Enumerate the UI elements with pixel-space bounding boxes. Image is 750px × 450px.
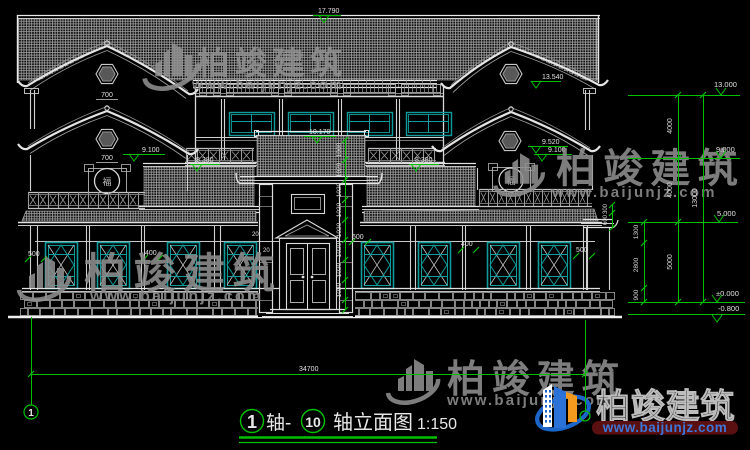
svg-text:13.540: 13.540 [542, 74, 564, 81]
svg-text:400: 400 [461, 241, 473, 248]
svg-text:700: 700 [101, 155, 113, 162]
svg-text:8.380: 8.380 [196, 157, 214, 164]
svg-text:-0.800: -0.800 [718, 304, 739, 313]
svg-text:www.baijunjz.com: www.baijunjz.com [602, 420, 728, 435]
svg-text:1: 1 [28, 408, 34, 419]
svg-text:1020: 1020 [336, 262, 343, 277]
svg-text:300: 300 [603, 203, 609, 214]
svg-text:13.000: 13.000 [714, 80, 737, 89]
svg-text:轴-: 轴- [266, 412, 291, 434]
svg-text:1020: 1020 [336, 282, 343, 297]
svg-text:9.520: 9.520 [542, 139, 560, 146]
svg-text:www.baijunjz.com: www.baijunjz.com [191, 77, 344, 92]
svg-text:福: 福 [102, 176, 111, 187]
svg-text:1020: 1020 [336, 222, 343, 237]
svg-text:1: 1 [247, 412, 257, 432]
svg-text:700: 700 [101, 92, 113, 99]
svg-text:17.790: 17.790 [318, 8, 340, 15]
svg-text:1020: 1020 [336, 202, 343, 217]
svg-text:1000: 1000 [336, 142, 343, 157]
svg-text:±0.000: ±0.000 [716, 289, 739, 298]
svg-text:柏竣建筑: 柏竣建筑 [197, 45, 348, 81]
svg-text:1020: 1020 [336, 242, 343, 257]
svg-text:20: 20 [252, 232, 259, 238]
svg-text:8.380: 8.380 [415, 157, 433, 164]
svg-text:4000: 4000 [667, 182, 674, 198]
svg-text:5.000: 5.000 [717, 209, 736, 218]
svg-text:轴立面图: 轴立面图 [333, 411, 413, 434]
svg-text:1020: 1020 [336, 182, 343, 197]
svg-text:9.100: 9.100 [142, 147, 160, 154]
svg-text:5000: 5000 [667, 254, 674, 270]
svg-text:2800: 2800 [633, 257, 640, 272]
svg-text:1020: 1020 [336, 162, 343, 177]
svg-text:1:150: 1:150 [417, 416, 457, 433]
svg-text:www.baijunjz.com: www.baijunjz.com [89, 288, 263, 305]
svg-text:1300: 1300 [633, 224, 640, 239]
svg-text:500: 500 [576, 247, 588, 254]
svg-text:600: 600 [603, 214, 609, 225]
svg-text:4000: 4000 [667, 118, 674, 134]
svg-text:13000: 13000 [692, 188, 699, 208]
svg-text:10.170: 10.170 [309, 129, 331, 136]
svg-text:34700: 34700 [299, 366, 319, 373]
svg-text:900: 900 [633, 289, 640, 300]
svg-text:10: 10 [305, 414, 321, 430]
